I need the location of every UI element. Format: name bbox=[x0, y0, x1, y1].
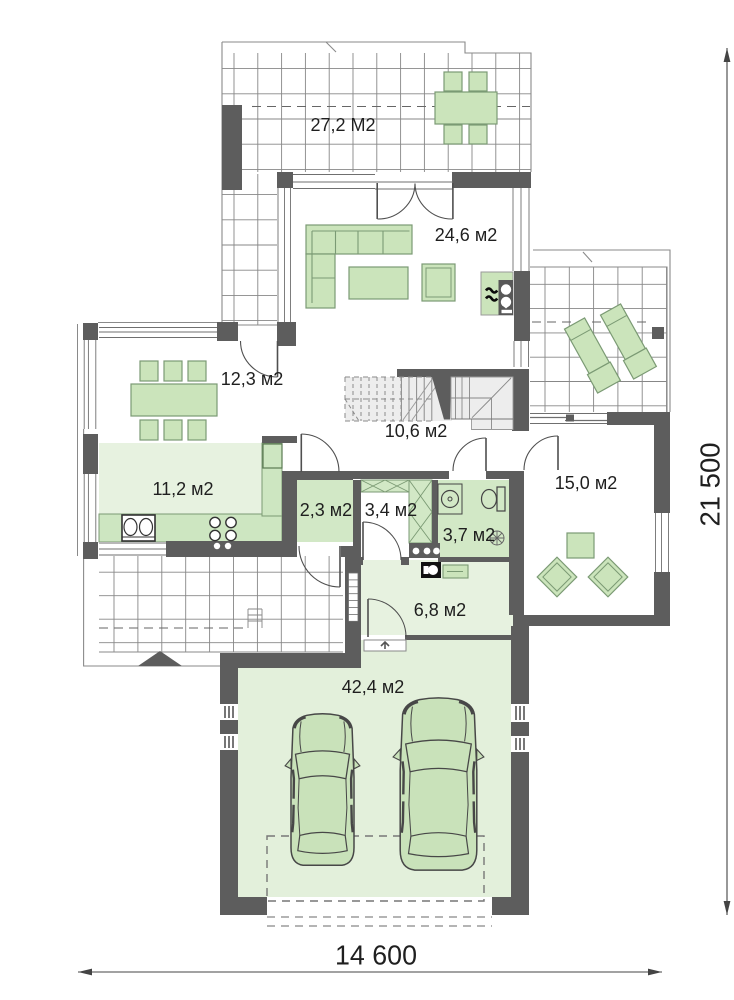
svg-text:27,2 М2: 27,2 М2 bbox=[310, 115, 375, 135]
svg-text:10,6 м2: 10,6 м2 bbox=[385, 421, 447, 441]
svg-text:42,4 м2: 42,4 м2 bbox=[342, 677, 404, 697]
svg-text:3,7 м2: 3,7 м2 bbox=[443, 525, 495, 545]
svg-text:24,6 м2: 24,6 м2 bbox=[435, 225, 497, 245]
svg-text:6,8 м2: 6,8 м2 bbox=[414, 600, 466, 620]
svg-text:11,2 м2: 11,2 м2 bbox=[152, 479, 213, 499]
svg-text:3,4 м2: 3,4 м2 bbox=[365, 500, 417, 520]
svg-text:12,3 м2: 12,3 м2 bbox=[221, 369, 283, 389]
svg-text:21 500: 21 500 bbox=[695, 443, 726, 527]
svg-text:15,0 м2: 15,0 м2 bbox=[555, 473, 617, 493]
svg-text:2,3 м2: 2,3 м2 bbox=[300, 500, 352, 520]
svg-text:14 600: 14 600 bbox=[335, 940, 417, 971]
